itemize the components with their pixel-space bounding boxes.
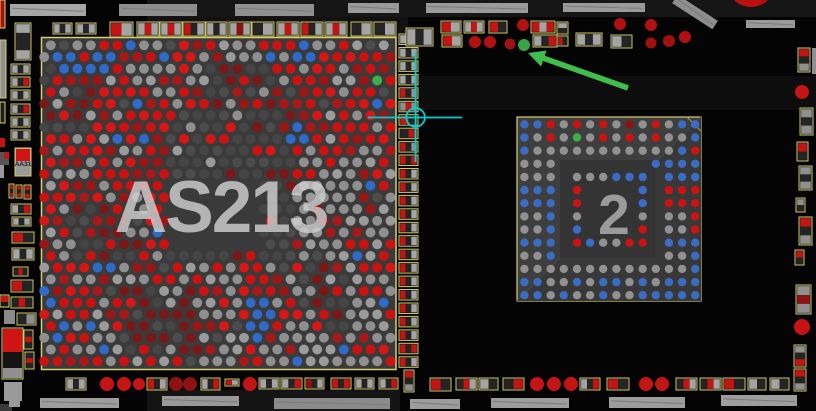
svg-text:2: 2 (598, 183, 630, 247)
svg-text:AA31: AA31 (15, 161, 32, 168)
svg-text:AS213: AS213 (115, 167, 330, 248)
